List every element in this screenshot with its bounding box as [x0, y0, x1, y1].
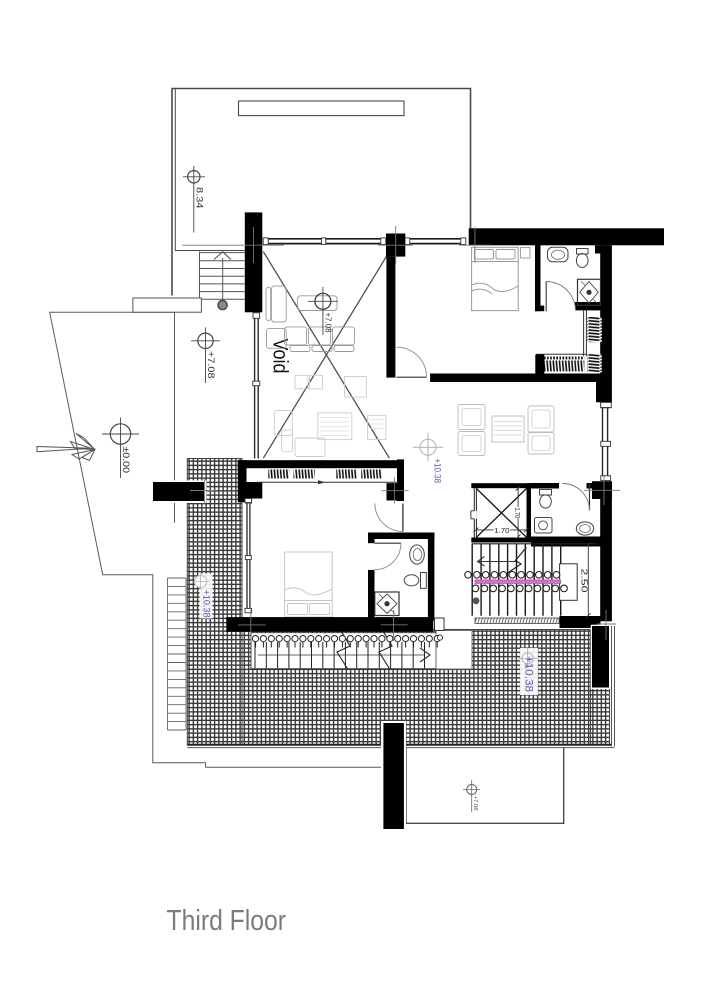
- svg-text:+10.38: +10.38: [200, 590, 211, 618]
- svg-text:2.50: 2.50: [580, 569, 589, 594]
- svg-text:Third Floor: Third Floor: [167, 905, 287, 937]
- svg-text:1.70: 1.70: [494, 528, 510, 535]
- svg-text:8.34: 8.34: [195, 187, 205, 209]
- svg-text:+10.38: +10.38: [433, 459, 443, 484]
- svg-text:1.70: 1.70: [513, 508, 520, 519]
- svg-text:+10.38: +10.38: [523, 656, 535, 692]
- svg-text:Void: Void: [269, 339, 292, 374]
- svg-text:+7.08: +7.08: [323, 313, 332, 334]
- svg-text:+7.08: +7.08: [472, 796, 478, 811]
- svg-text:+7.08: +7.08: [206, 351, 216, 379]
- svg-text:±0.00: ±0.00: [120, 447, 131, 474]
